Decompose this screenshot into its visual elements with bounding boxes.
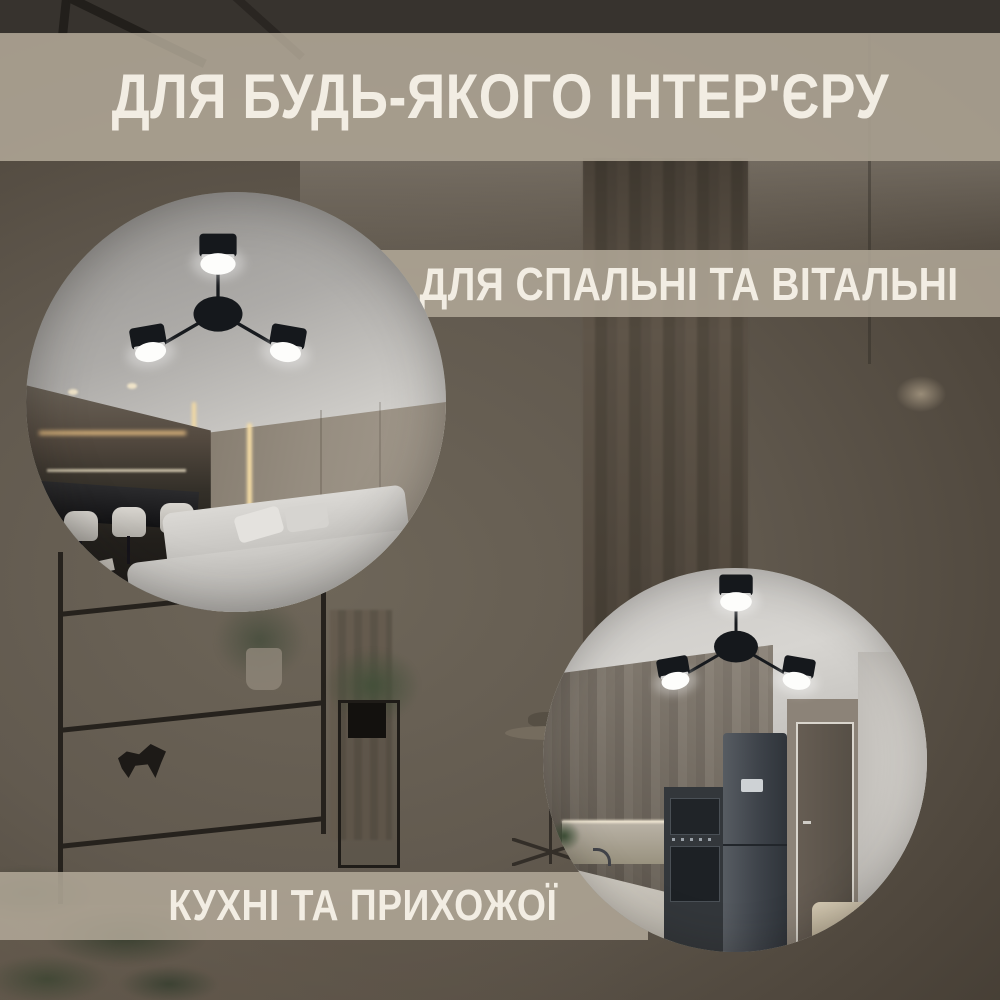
backdrop-shelf-plant-pot <box>246 648 282 690</box>
lamp-head-left <box>122 322 178 372</box>
console-shelf-board <box>58 816 325 849</box>
lamp-head-right <box>772 654 822 699</box>
lamp-head-right <box>259 322 315 372</box>
backdrop-dark-ceiling-strip <box>0 0 1000 34</box>
header-banner: ДЛЯ БУДЬ-ЯКОГО ІНТЕР'ЄРУ <box>0 33 1000 161</box>
header-banner-text: ДЛЯ БУДЬ-ЯКОГО ІНТЕР'ЄРУ <box>111 66 888 129</box>
living-room-photo-circle <box>26 192 446 612</box>
backdrop-wall-sconce-glow <box>896 376 946 412</box>
bedroom-living-banner: ДЛЯ СПАЛЬНІ ТА ВІТАЛЬНІ <box>378 250 1000 317</box>
bedroom-living-banner-text: ДЛЯ СПАЛЬНІ ТА ВІТАЛЬНІ <box>420 261 959 307</box>
kitchen-photo-circle <box>543 568 927 952</box>
lamp-head-top <box>712 574 760 615</box>
backdrop-plant-stand-frame <box>338 700 400 868</box>
lamp-canopy <box>194 296 243 331</box>
lamp-canopy <box>714 631 758 663</box>
lamp-head-top <box>192 234 245 280</box>
lamp-head-left <box>650 654 700 699</box>
three-arm-ceiling-lamp <box>120 226 316 396</box>
product-showcase-image: ДЛЯ БУДЬ-ЯКОГО ІНТЕР'ЄРУ ДЛЯ СПАЛЬНІ ТА … <box>0 0 1000 1000</box>
console-shelf-board <box>58 700 325 733</box>
kitchen-hallway-banner-text: КУХНІ ТА ПРИХОЖОЇ <box>169 884 558 928</box>
three-arm-ceiling-lamp <box>648 568 824 720</box>
